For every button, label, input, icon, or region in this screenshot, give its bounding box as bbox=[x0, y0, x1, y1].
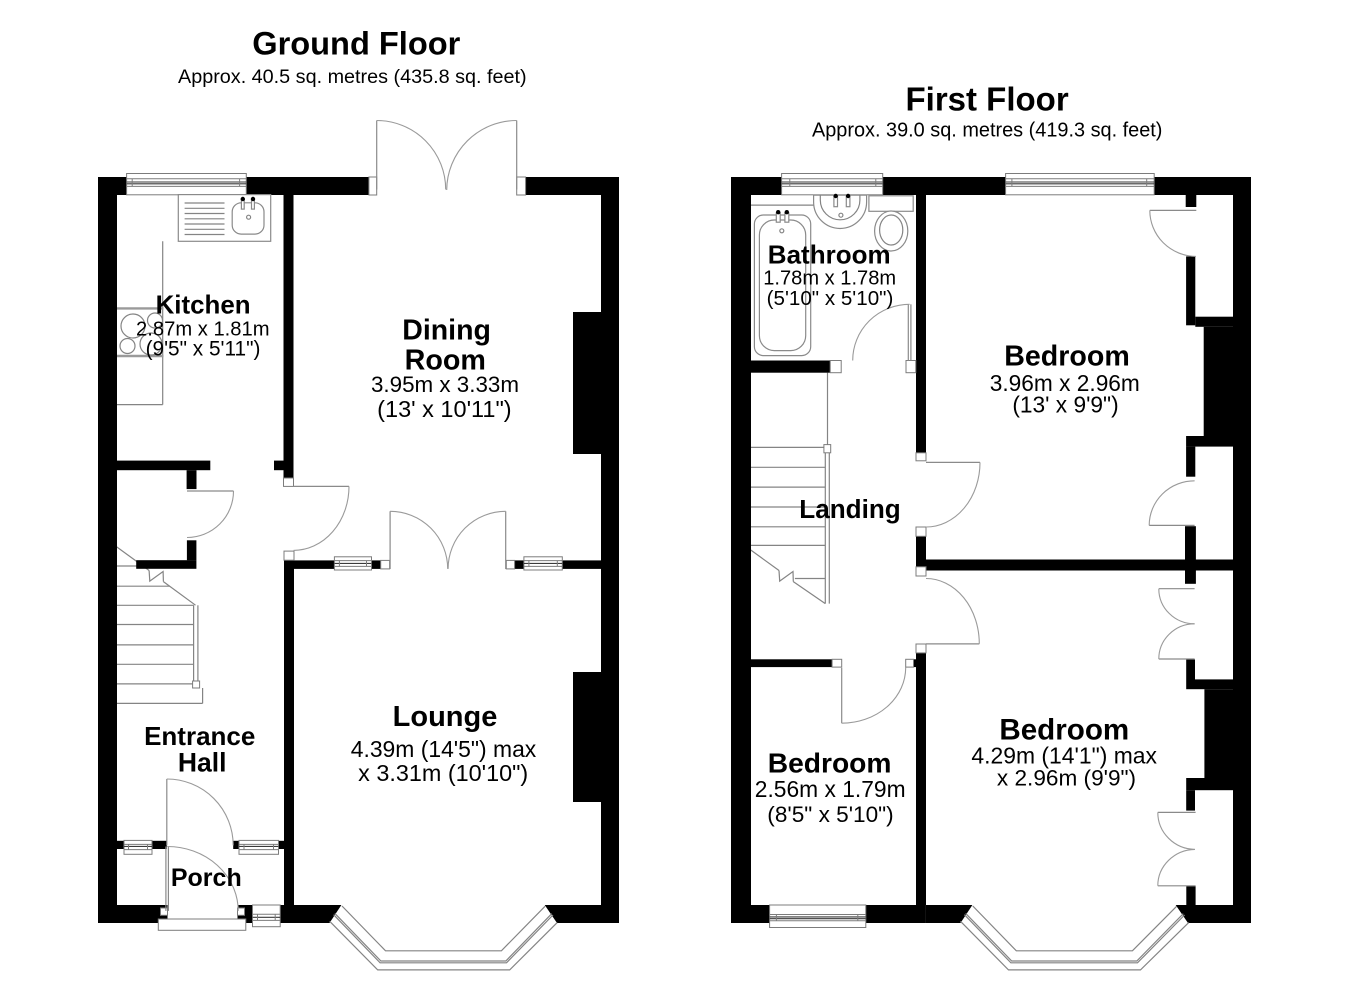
svg-text:Lounge: Lounge bbox=[393, 701, 498, 733]
svg-text:Landing: Landing bbox=[799, 494, 900, 524]
svg-text:Entrance: Entrance bbox=[144, 721, 255, 751]
svg-text:(9'5" x 5'11"): (9'5" x 5'11") bbox=[146, 338, 261, 361]
svg-text:Approx. 39.0 sq. metres (419.3: Approx. 39.0 sq. metres (419.3 sq. feet) bbox=[812, 119, 1162, 141]
svg-text:(8'5" x 5'10"): (8'5" x 5'10") bbox=[767, 802, 893, 827]
svg-text:(13' x 9'9"): (13' x 9'9") bbox=[1012, 392, 1118, 418]
svg-text:Bedroom: Bedroom bbox=[1004, 341, 1130, 373]
svg-text:4.39m (14'5") max: 4.39m (14'5") max bbox=[351, 736, 537, 762]
svg-text:Dining: Dining bbox=[402, 315, 491, 347]
svg-text:2.56m x 1.79m: 2.56m x 1.79m bbox=[755, 776, 906, 802]
svg-text:Approx. 40.5 sq. metres (435.8: Approx. 40.5 sq. metres (435.8 sq. feet) bbox=[178, 66, 527, 88]
svg-text:x 3.31m (10'10"): x 3.31m (10'10") bbox=[358, 760, 528, 786]
svg-text:First Floor: First Floor bbox=[906, 80, 1069, 117]
svg-text:Ground Floor: Ground Floor bbox=[252, 24, 460, 61]
svg-text:Kitchen: Kitchen bbox=[156, 292, 251, 320]
svg-text:x 2.96m (9'9"): x 2.96m (9'9") bbox=[997, 766, 1136, 791]
svg-text:3.95m x 3.33m: 3.95m x 3.33m bbox=[371, 372, 519, 397]
svg-text:Porch: Porch bbox=[171, 864, 242, 892]
svg-text:(5'10" x 5'10"): (5'10" x 5'10") bbox=[767, 287, 894, 310]
svg-text:4.29m (14'1") max: 4.29m (14'1") max bbox=[971, 742, 1157, 768]
svg-text:Hall: Hall bbox=[178, 748, 227, 778]
svg-text:(13' x 10'11"): (13' x 10'11") bbox=[377, 396, 511, 422]
svg-text:Bedroom: Bedroom bbox=[768, 746, 892, 778]
svg-text:Bathroom: Bathroom bbox=[768, 240, 891, 270]
